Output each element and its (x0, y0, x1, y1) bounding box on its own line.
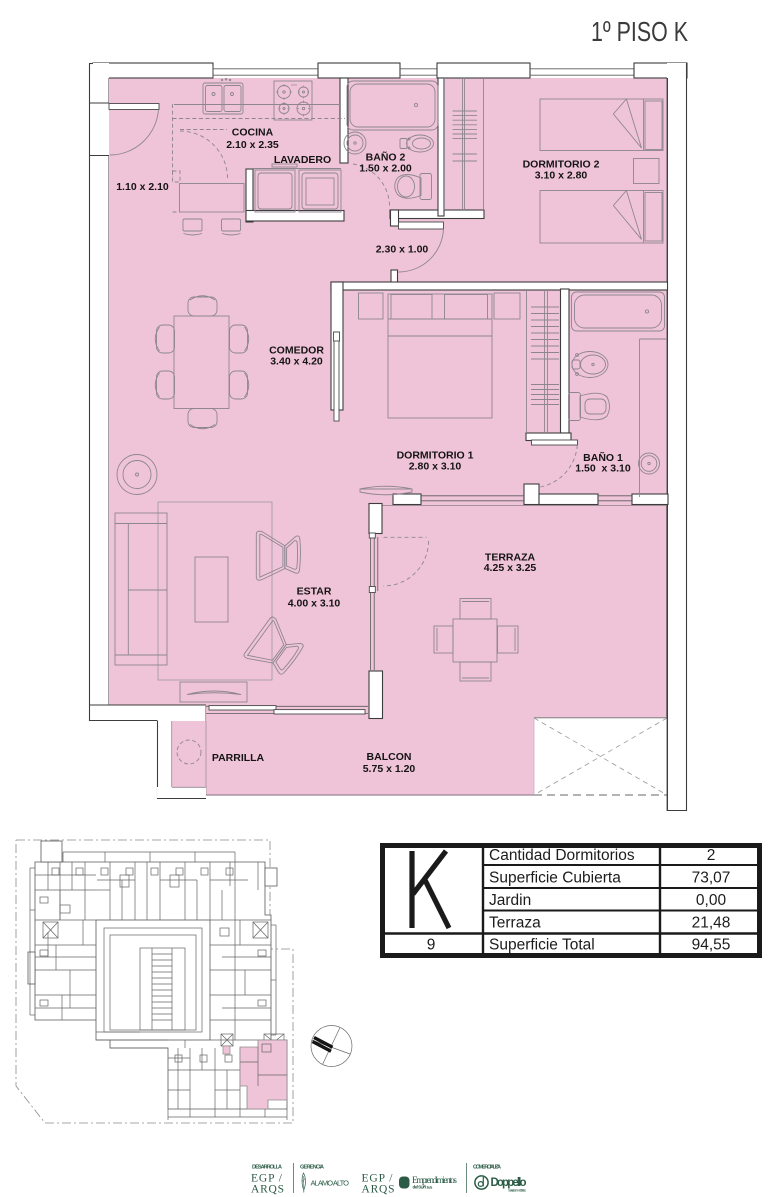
svg-text:1.50 x 3.10: 1.50 x 3.10 (575, 463, 631, 475)
svg-text:73,07: 73,07 (692, 870, 731, 887)
svg-text:0,00: 0,00 (696, 892, 727, 909)
svg-text:LAVADERO: LAVADERO (274, 154, 331, 166)
svg-text:5.75 x 1.20: 5.75 x 1.20 (363, 763, 416, 775)
svg-text:GERENCIA: GERENCIA (300, 1165, 324, 1171)
svg-text:3.10 x 2.80: 3.10 x 2.80 (535, 170, 588, 182)
svg-text:2: 2 (707, 847, 716, 864)
svg-text:ARQS: ARQS (251, 1184, 284, 1196)
svg-text:1.50 x 2.00: 1.50 x 2.00 (359, 163, 412, 175)
svg-text:COMERCIALIZA: COMERCIALIZA (473, 1165, 501, 1171)
svg-text:Jardin: Jardin (489, 892, 531, 909)
svg-text:DESARROLLA: DESARROLLA (252, 1165, 282, 1171)
svg-text:ALAMO ALTO: ALAMO ALTO (311, 1179, 350, 1188)
svg-text:1º PISO K: 1º PISO K (591, 16, 688, 47)
svg-text:Terraza: Terraza (489, 915, 541, 932)
svg-text:ARQS: ARQS (362, 1184, 395, 1196)
svg-text:9: 9 (427, 937, 436, 954)
svg-text:Superficie Total: Superficie Total (489, 937, 595, 954)
svg-text:BALCON: BALCON (367, 751, 412, 763)
svg-text:21,48: 21,48 (692, 915, 731, 932)
svg-text:1.10 x 2.10: 1.10 x 2.10 (116, 181, 169, 193)
svg-text:2.30 x 1.00: 2.30 x 1.00 (376, 244, 429, 256)
svg-text:COCINA: COCINA (232, 127, 274, 139)
svg-text:Servicios Inmobiliarios: Servicios Inmobiliarios (508, 1189, 526, 1193)
svg-text:del SUR s.a.: del SUR s.a. (413, 1185, 433, 1190)
svg-text:Superficie Cubierta: Superficie Cubierta (489, 870, 621, 887)
svg-text:Doppello: Doppello (491, 1177, 527, 1189)
svg-text:PARRILLA: PARRILLA (212, 752, 265, 764)
svg-text:3.40 x 4.20: 3.40 x 4.20 (270, 356, 323, 368)
svg-text:Cantidad Dormitorios: Cantidad Dormitorios (489, 847, 635, 864)
svg-text:4.25 x 3.25: 4.25 x 3.25 (484, 562, 537, 574)
svg-text:4.00 x 3.10: 4.00 x 3.10 (288, 598, 341, 610)
svg-text:2.80 x 3.10: 2.80 x 3.10 (409, 461, 462, 473)
svg-text:ESTAR: ESTAR (297, 586, 332, 598)
svg-text:94,55: 94,55 (692, 937, 731, 954)
svg-text:2.10 x 2.35: 2.10 x 2.35 (226, 139, 279, 151)
